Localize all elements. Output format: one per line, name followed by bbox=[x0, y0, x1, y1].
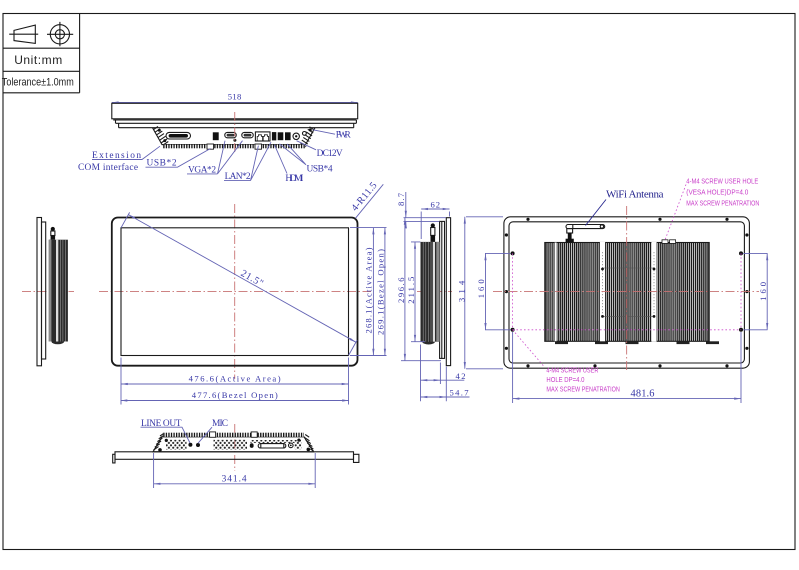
svg-text:WiFi Antenna: WiFi Antenna bbox=[606, 189, 664, 201]
svg-text:42: 42 bbox=[456, 371, 466, 381]
svg-text:4-M4 SCREW USER HOLE: 4-M4 SCREW USER HOLE bbox=[686, 176, 758, 185]
svg-text:341.4: 341.4 bbox=[222, 474, 247, 484]
svg-text:54.7: 54.7 bbox=[450, 388, 470, 398]
svg-text:HOLE DP=4.0: HOLE DP=4.0 bbox=[546, 375, 584, 384]
svg-text:21.5": 21.5" bbox=[239, 268, 265, 289]
svg-text:MAX SCREW PENATRATION: MAX SCREW PENATRATION bbox=[546, 385, 620, 394]
svg-text:MAX SCREW PENATRATION: MAX SCREW PENATRATION bbox=[686, 199, 759, 208]
svg-text:269.1(Bezel Open): 269.1(Bezel Open) bbox=[375, 249, 385, 335]
svg-text:477.6(Bezel Open): 477.6(Bezel Open) bbox=[192, 390, 278, 400]
svg-text:314: 314 bbox=[456, 280, 466, 302]
svg-text:481.6: 481.6 bbox=[631, 389, 655, 400]
svg-text:160: 160 bbox=[476, 279, 486, 298]
svg-text:8.7: 8.7 bbox=[396, 192, 406, 206]
svg-text:518: 518 bbox=[228, 92, 242, 102]
svg-text:DC12V: DC12V bbox=[317, 149, 343, 159]
svg-text:62: 62 bbox=[431, 199, 441, 209]
svg-text:Unit:mm: Unit:mm bbox=[14, 53, 62, 67]
svg-text:4-M4 SCREW USER: 4-M4 SCREW USER bbox=[546, 366, 598, 375]
svg-text:PWR: PWR bbox=[336, 131, 352, 141]
svg-text:HDMI: HDMI bbox=[285, 174, 303, 184]
svg-text:MIC: MIC bbox=[212, 419, 228, 429]
svg-text:296.6: 296.6 bbox=[396, 277, 406, 303]
svg-text:COM interface: COM interface bbox=[78, 162, 138, 173]
svg-text:4-R11.5: 4-R11.5 bbox=[349, 180, 379, 213]
svg-text:268.1(Active Area): 268.1(Active Area) bbox=[364, 247, 374, 333]
svg-text:211.5: 211.5 bbox=[406, 277, 416, 304]
svg-text:476.6(Active Area): 476.6(Active Area) bbox=[189, 374, 281, 384]
svg-text:160: 160 bbox=[758, 282, 768, 301]
svg-text:Tolerance±1.0mm: Tolerance±1.0mm bbox=[2, 76, 74, 88]
svg-text:USB*4: USB*4 bbox=[307, 165, 333, 175]
svg-text:(VESA HOLE)DP=4.0: (VESA HOLE)DP=4.0 bbox=[686, 187, 748, 196]
